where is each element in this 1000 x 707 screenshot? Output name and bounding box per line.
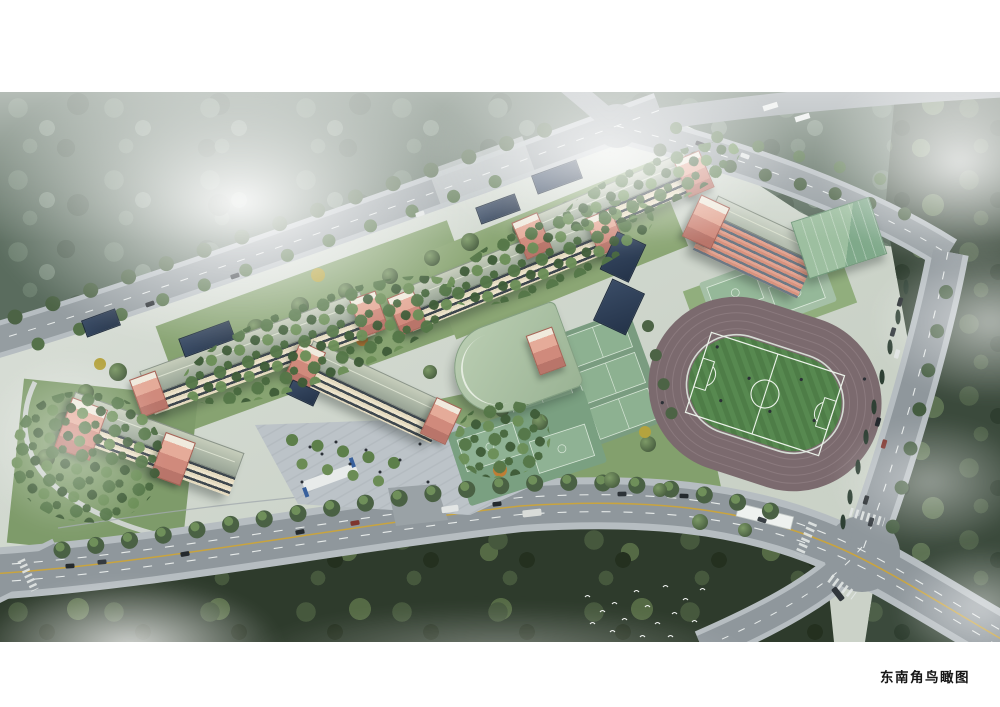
aerial-rendering <box>0 92 1000 642</box>
caption-southeast-birdseye: 东南角鸟瞰图 <box>880 666 970 686</box>
page: 东南角鸟瞰图 <box>0 0 1000 707</box>
birds-flock <box>585 586 705 638</box>
